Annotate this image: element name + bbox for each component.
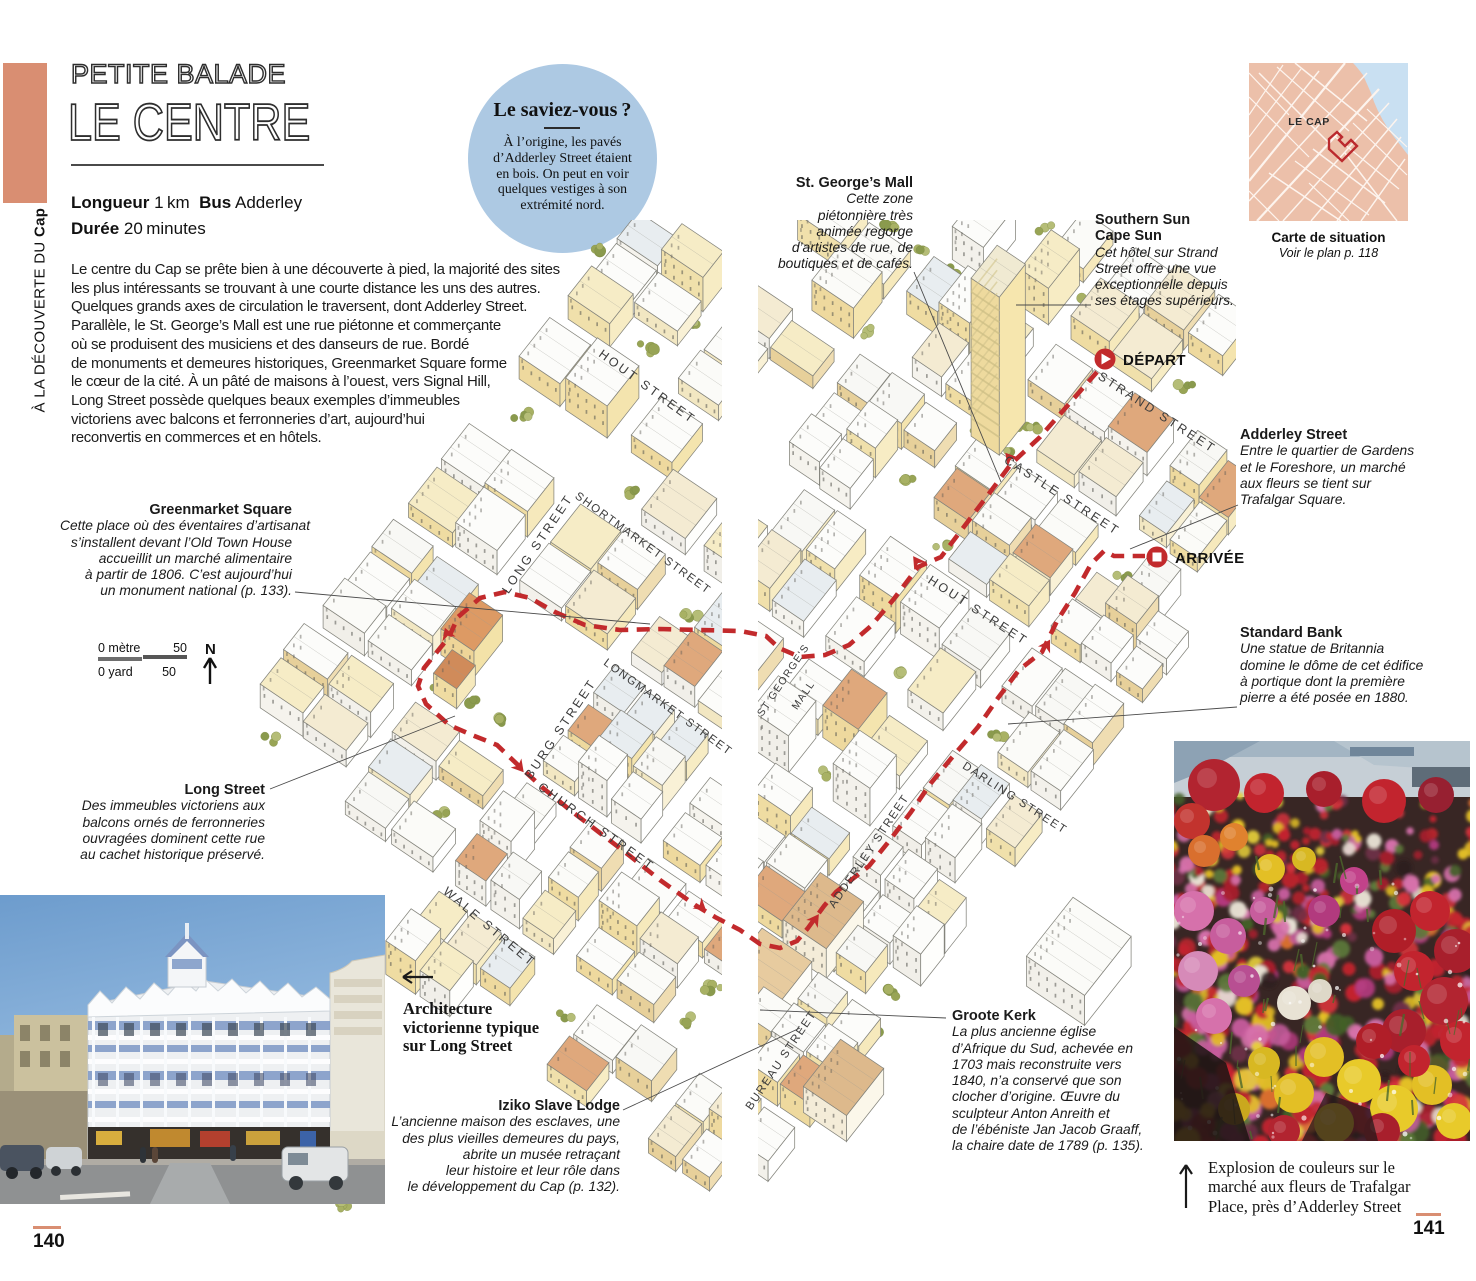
svg-text:0 yard: 0 yard [98, 665, 133, 679]
svg-text:50: 50 [173, 641, 187, 655]
svg-text:50: 50 [162, 665, 176, 679]
svg-text:N: N [205, 641, 216, 658]
svg-text:ARRIVÉE: ARRIVÉE [1175, 550, 1244, 567]
svg-text:LE CAP: LE CAP [1288, 116, 1330, 128]
svg-text:0 mètre: 0 mètre [98, 641, 140, 655]
svg-text:DÉPART: DÉPART [1123, 352, 1186, 369]
